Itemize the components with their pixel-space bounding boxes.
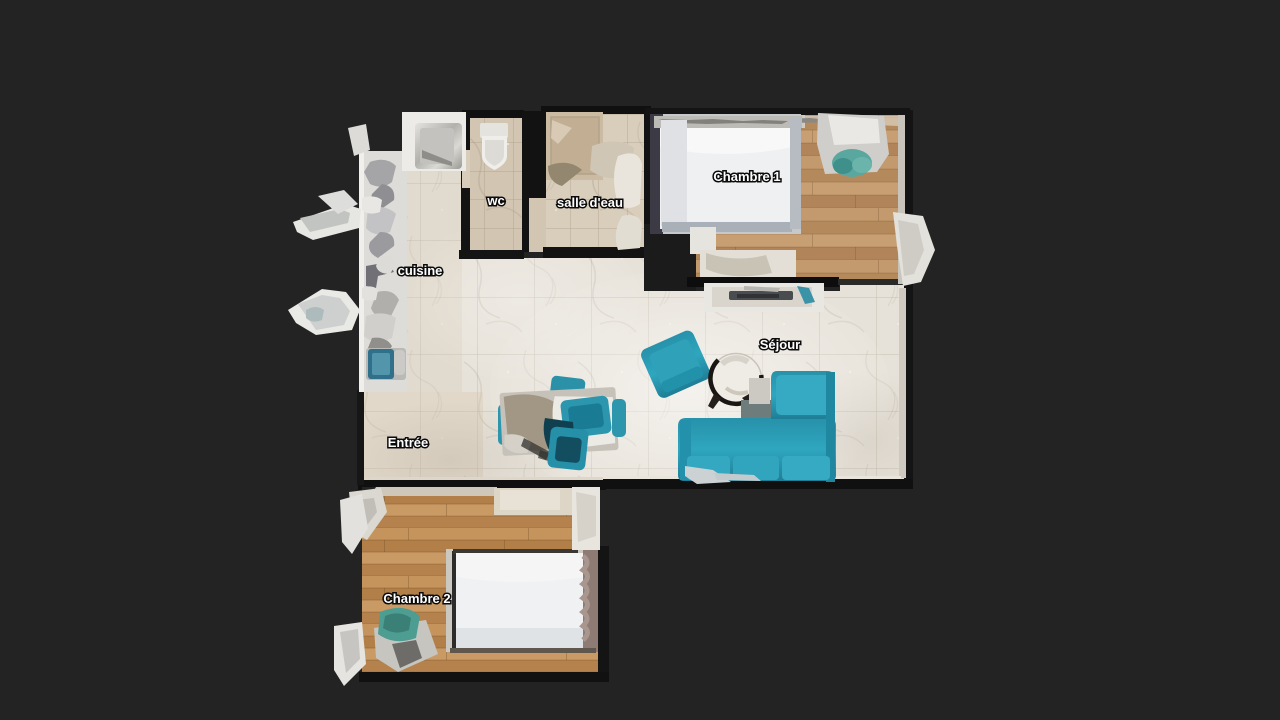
svg-text:Séjour: Séjour <box>760 337 800 352</box>
svg-text:wc: wc <box>486 193 504 208</box>
svg-text:Chambre 1: Chambre 1 <box>713 169 780 184</box>
svg-text:salle d'eau: salle d'eau <box>557 195 623 210</box>
svg-text:cuisine: cuisine <box>398 263 443 278</box>
svg-text:Chambre 2: Chambre 2 <box>383 591 450 606</box>
svg-text:Entrée: Entrée <box>388 435 428 450</box>
